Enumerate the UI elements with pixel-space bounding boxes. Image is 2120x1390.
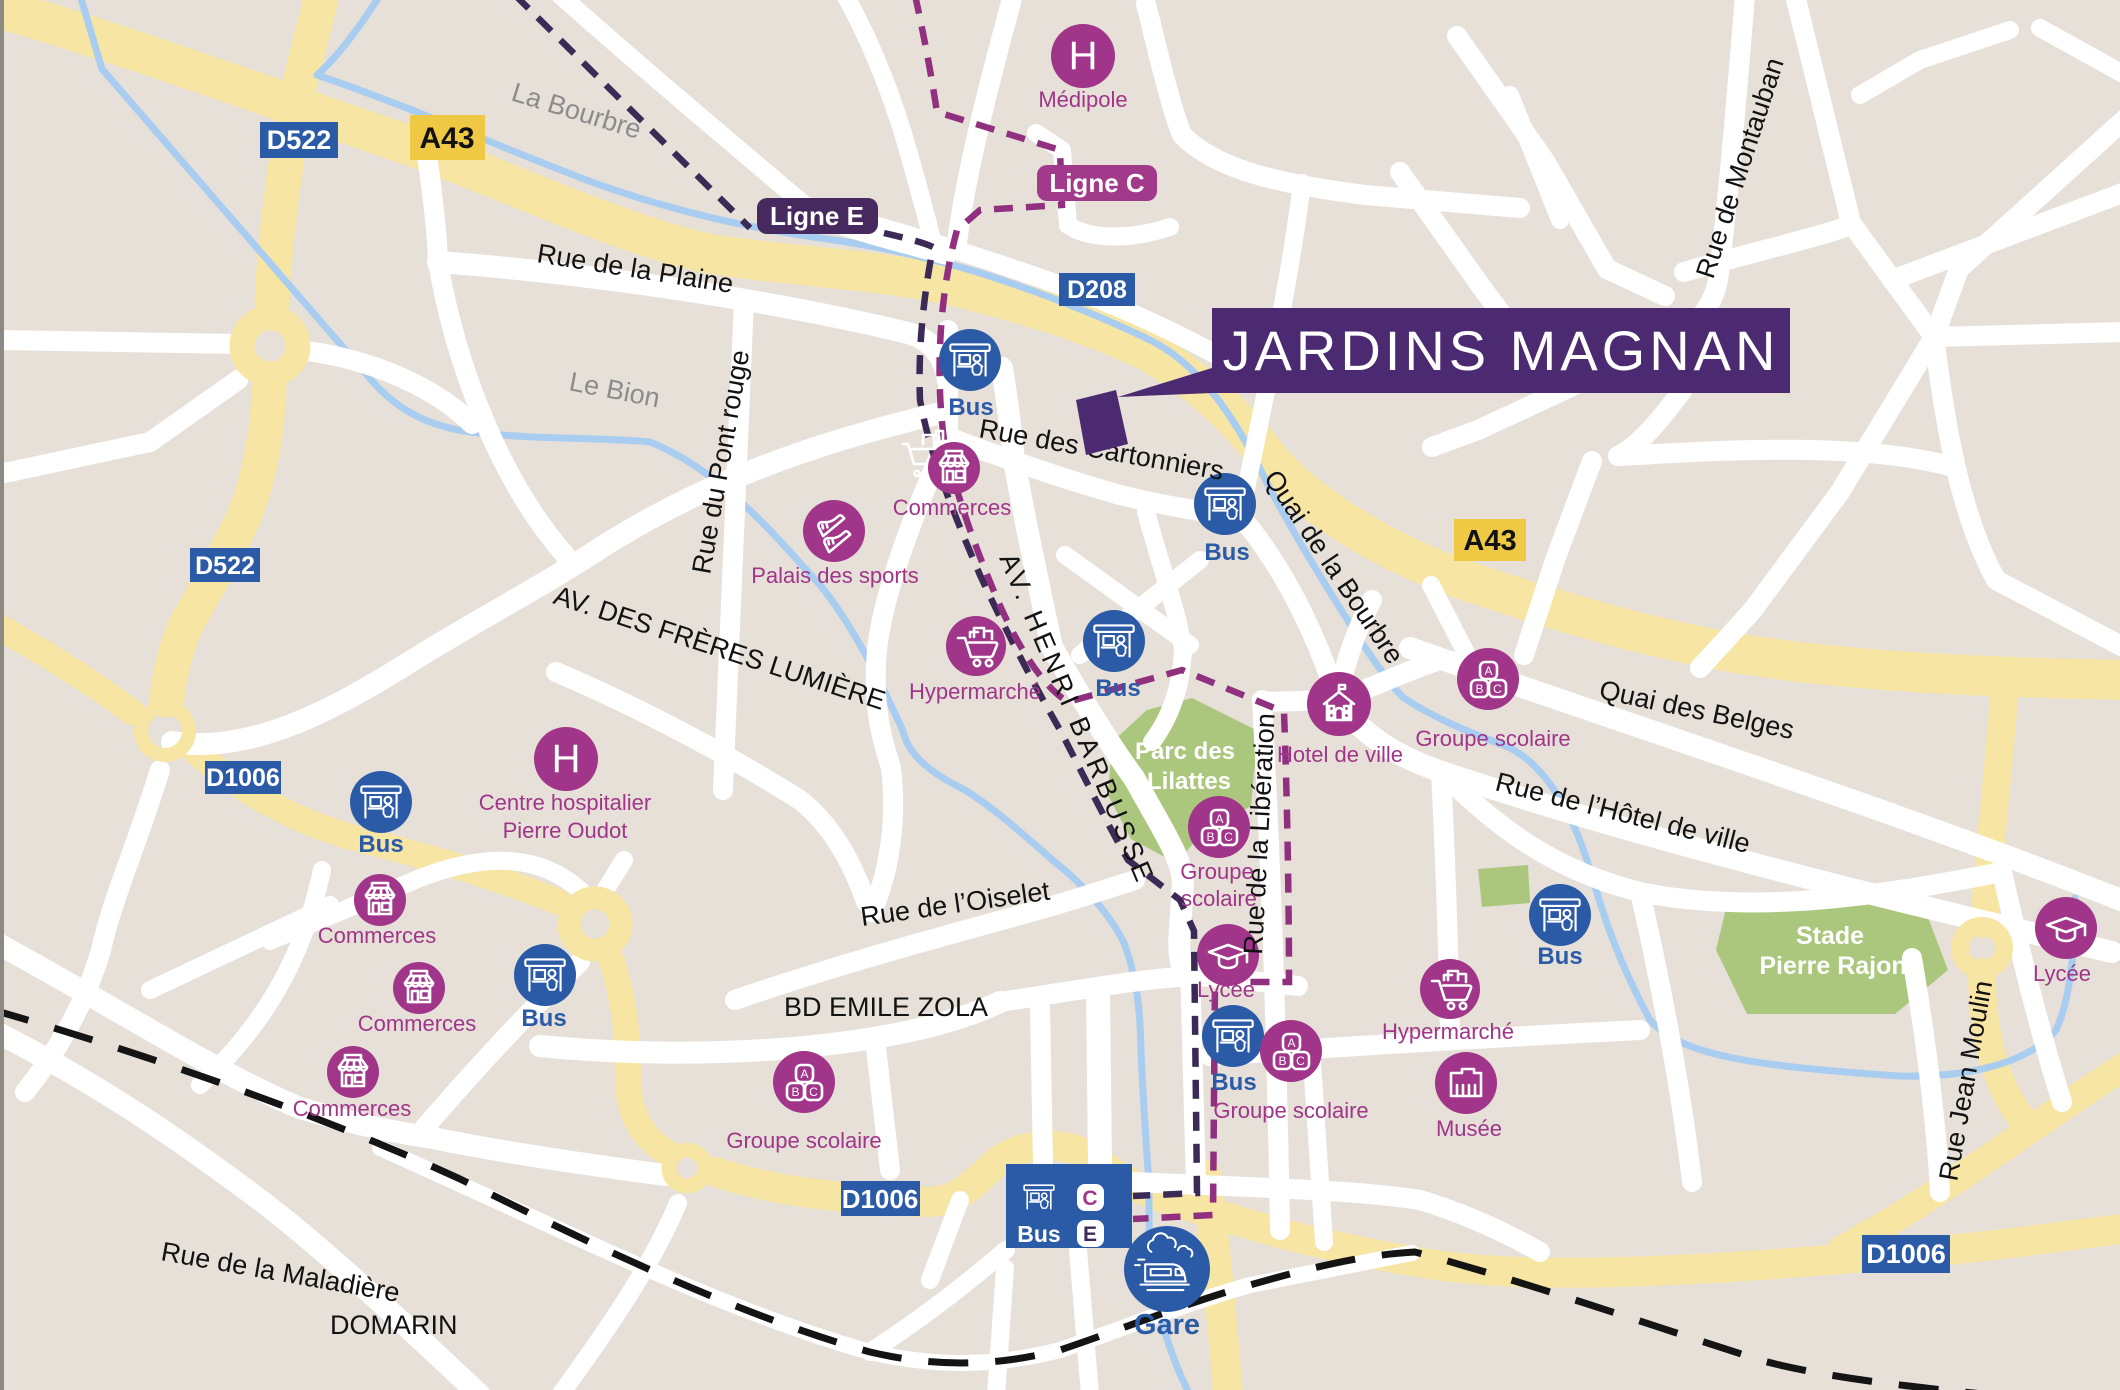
svg-text:BD EMILE ZOLA: BD EMILE ZOLA <box>784 992 988 1022</box>
svg-text:Lycée: Lycée <box>1197 977 1255 1002</box>
svg-text:Bus: Bus <box>1211 1069 1256 1096</box>
svg-text:Hypermarché: Hypermarché <box>909 679 1041 704</box>
svg-text:JARDINS MAGNAN: JARDINS MAGNAN <box>1223 319 1780 382</box>
svg-text:D1006: D1006 <box>1866 1239 1946 1269</box>
svg-text:Stade: Stade <box>1796 922 1864 950</box>
svg-text:A43: A43 <box>419 122 474 155</box>
svg-text:A43: A43 <box>1463 525 1516 557</box>
svg-text:Palais des sports: Palais des sports <box>751 563 919 588</box>
svg-text:D208: D208 <box>1067 276 1127 304</box>
svg-text:Commerces: Commerces <box>293 1096 412 1121</box>
svg-text:Ligne C: Ligne C <box>1049 168 1145 198</box>
svg-text:Groupe scolaire: Groupe scolaire <box>1213 1098 1368 1123</box>
svg-text:C: C <box>1082 1187 1097 1210</box>
svg-text:Musée: Musée <box>1436 1116 1502 1141</box>
svg-text:Bus: Bus <box>1204 539 1249 566</box>
svg-text:Hotel de ville: Hotel de ville <box>1277 742 1403 767</box>
svg-text:Groupe scolaire: Groupe scolaire <box>1415 726 1570 751</box>
svg-text:Bus: Bus <box>358 831 403 858</box>
svg-text:Groupe: Groupe <box>1180 859 1253 884</box>
svg-text:D522: D522 <box>195 552 255 580</box>
svg-text:scolaire: scolaire <box>1181 886 1257 911</box>
svg-text:Parc des: Parc des <box>1135 738 1235 765</box>
svg-text:Pierre Oudot: Pierre Oudot <box>503 818 628 843</box>
svg-text:D522: D522 <box>267 125 332 155</box>
svg-text:DOMARIN: DOMARIN <box>330 1310 458 1340</box>
svg-text:Gare: Gare <box>1134 1309 1200 1341</box>
svg-text:Ligne E: Ligne E <box>770 201 864 231</box>
svg-text:Bus: Bus <box>1017 1221 1060 1247</box>
svg-text:Médipole: Médipole <box>1038 87 1127 112</box>
svg-text:Lilattes: Lilattes <box>1147 768 1231 795</box>
svg-text:Lycée: Lycée <box>2033 961 2091 986</box>
svg-text:Pierre Rajon: Pierre Rajon <box>1759 952 1906 980</box>
svg-text:Commerces: Commerces <box>358 1011 477 1036</box>
svg-text:Hypermarché: Hypermarché <box>1382 1019 1514 1044</box>
svg-text:D1006: D1006 <box>842 1184 919 1214</box>
svg-text:Commerces: Commerces <box>318 923 437 948</box>
svg-text:Bus: Bus <box>1095 675 1140 702</box>
svg-text:Bus: Bus <box>521 1005 566 1032</box>
svg-text:D1006: D1006 <box>206 764 280 792</box>
svg-text:Bus: Bus <box>948 394 993 421</box>
svg-text:Commerces: Commerces <box>893 495 1012 520</box>
svg-text:Centre hospitalier: Centre hospitalier <box>479 790 651 815</box>
svg-text:Bus: Bus <box>1537 943 1582 970</box>
svg-text:E: E <box>1083 1223 1097 1246</box>
svg-text:Groupe scolaire: Groupe scolaire <box>726 1128 881 1153</box>
